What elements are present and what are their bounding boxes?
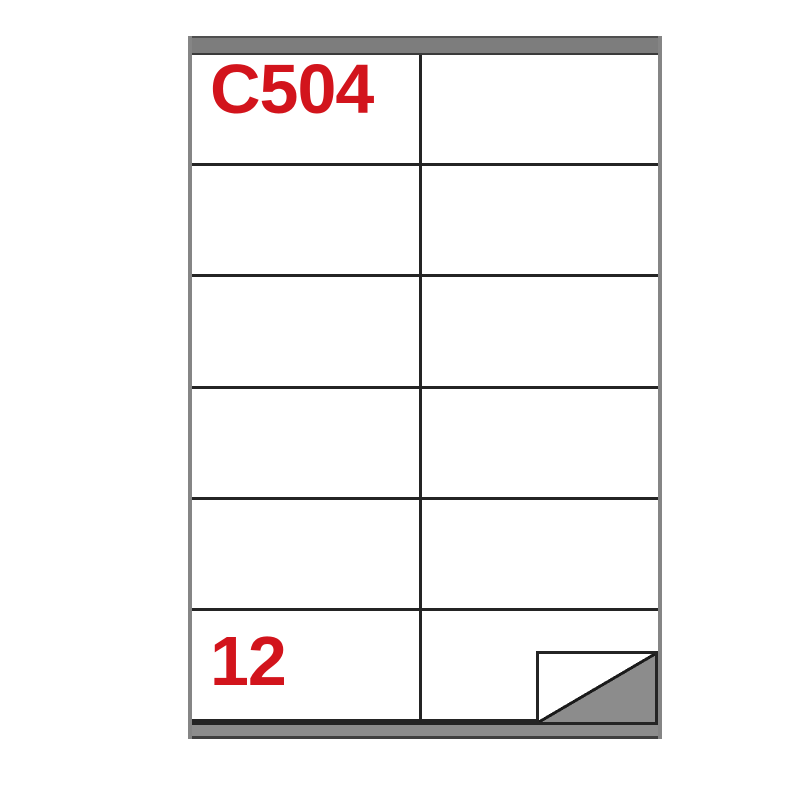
label-row (192, 500, 658, 611)
folded-corner-graphic (539, 654, 655, 722)
label-cell (422, 500, 658, 608)
label-grid: C504 12 (192, 55, 658, 722)
product-code: C504 (210, 55, 419, 128)
label-row: C504 (192, 55, 658, 166)
label-row (192, 389, 658, 500)
label-row (192, 166, 658, 277)
product-diagram: C504 12 (0, 0, 800, 800)
label-cell: 12 (192, 611, 422, 719)
label-row (192, 277, 658, 388)
label-cell (192, 389, 422, 497)
label-cell (422, 389, 658, 497)
label-sheet: C504 12 (188, 36, 662, 739)
folded-corner-icon (536, 651, 658, 722)
label-cell: C504 (192, 55, 422, 163)
label-cell (422, 55, 658, 163)
sheet-bottom-margin-strip (192, 722, 658, 739)
label-cell (192, 500, 422, 608)
labels-count: 12 (210, 623, 419, 700)
label-cell (422, 277, 658, 385)
label-cell (192, 277, 422, 385)
label-cell (422, 166, 658, 274)
label-cell (192, 166, 422, 274)
sheet-top-margin-strip (192, 36, 658, 55)
